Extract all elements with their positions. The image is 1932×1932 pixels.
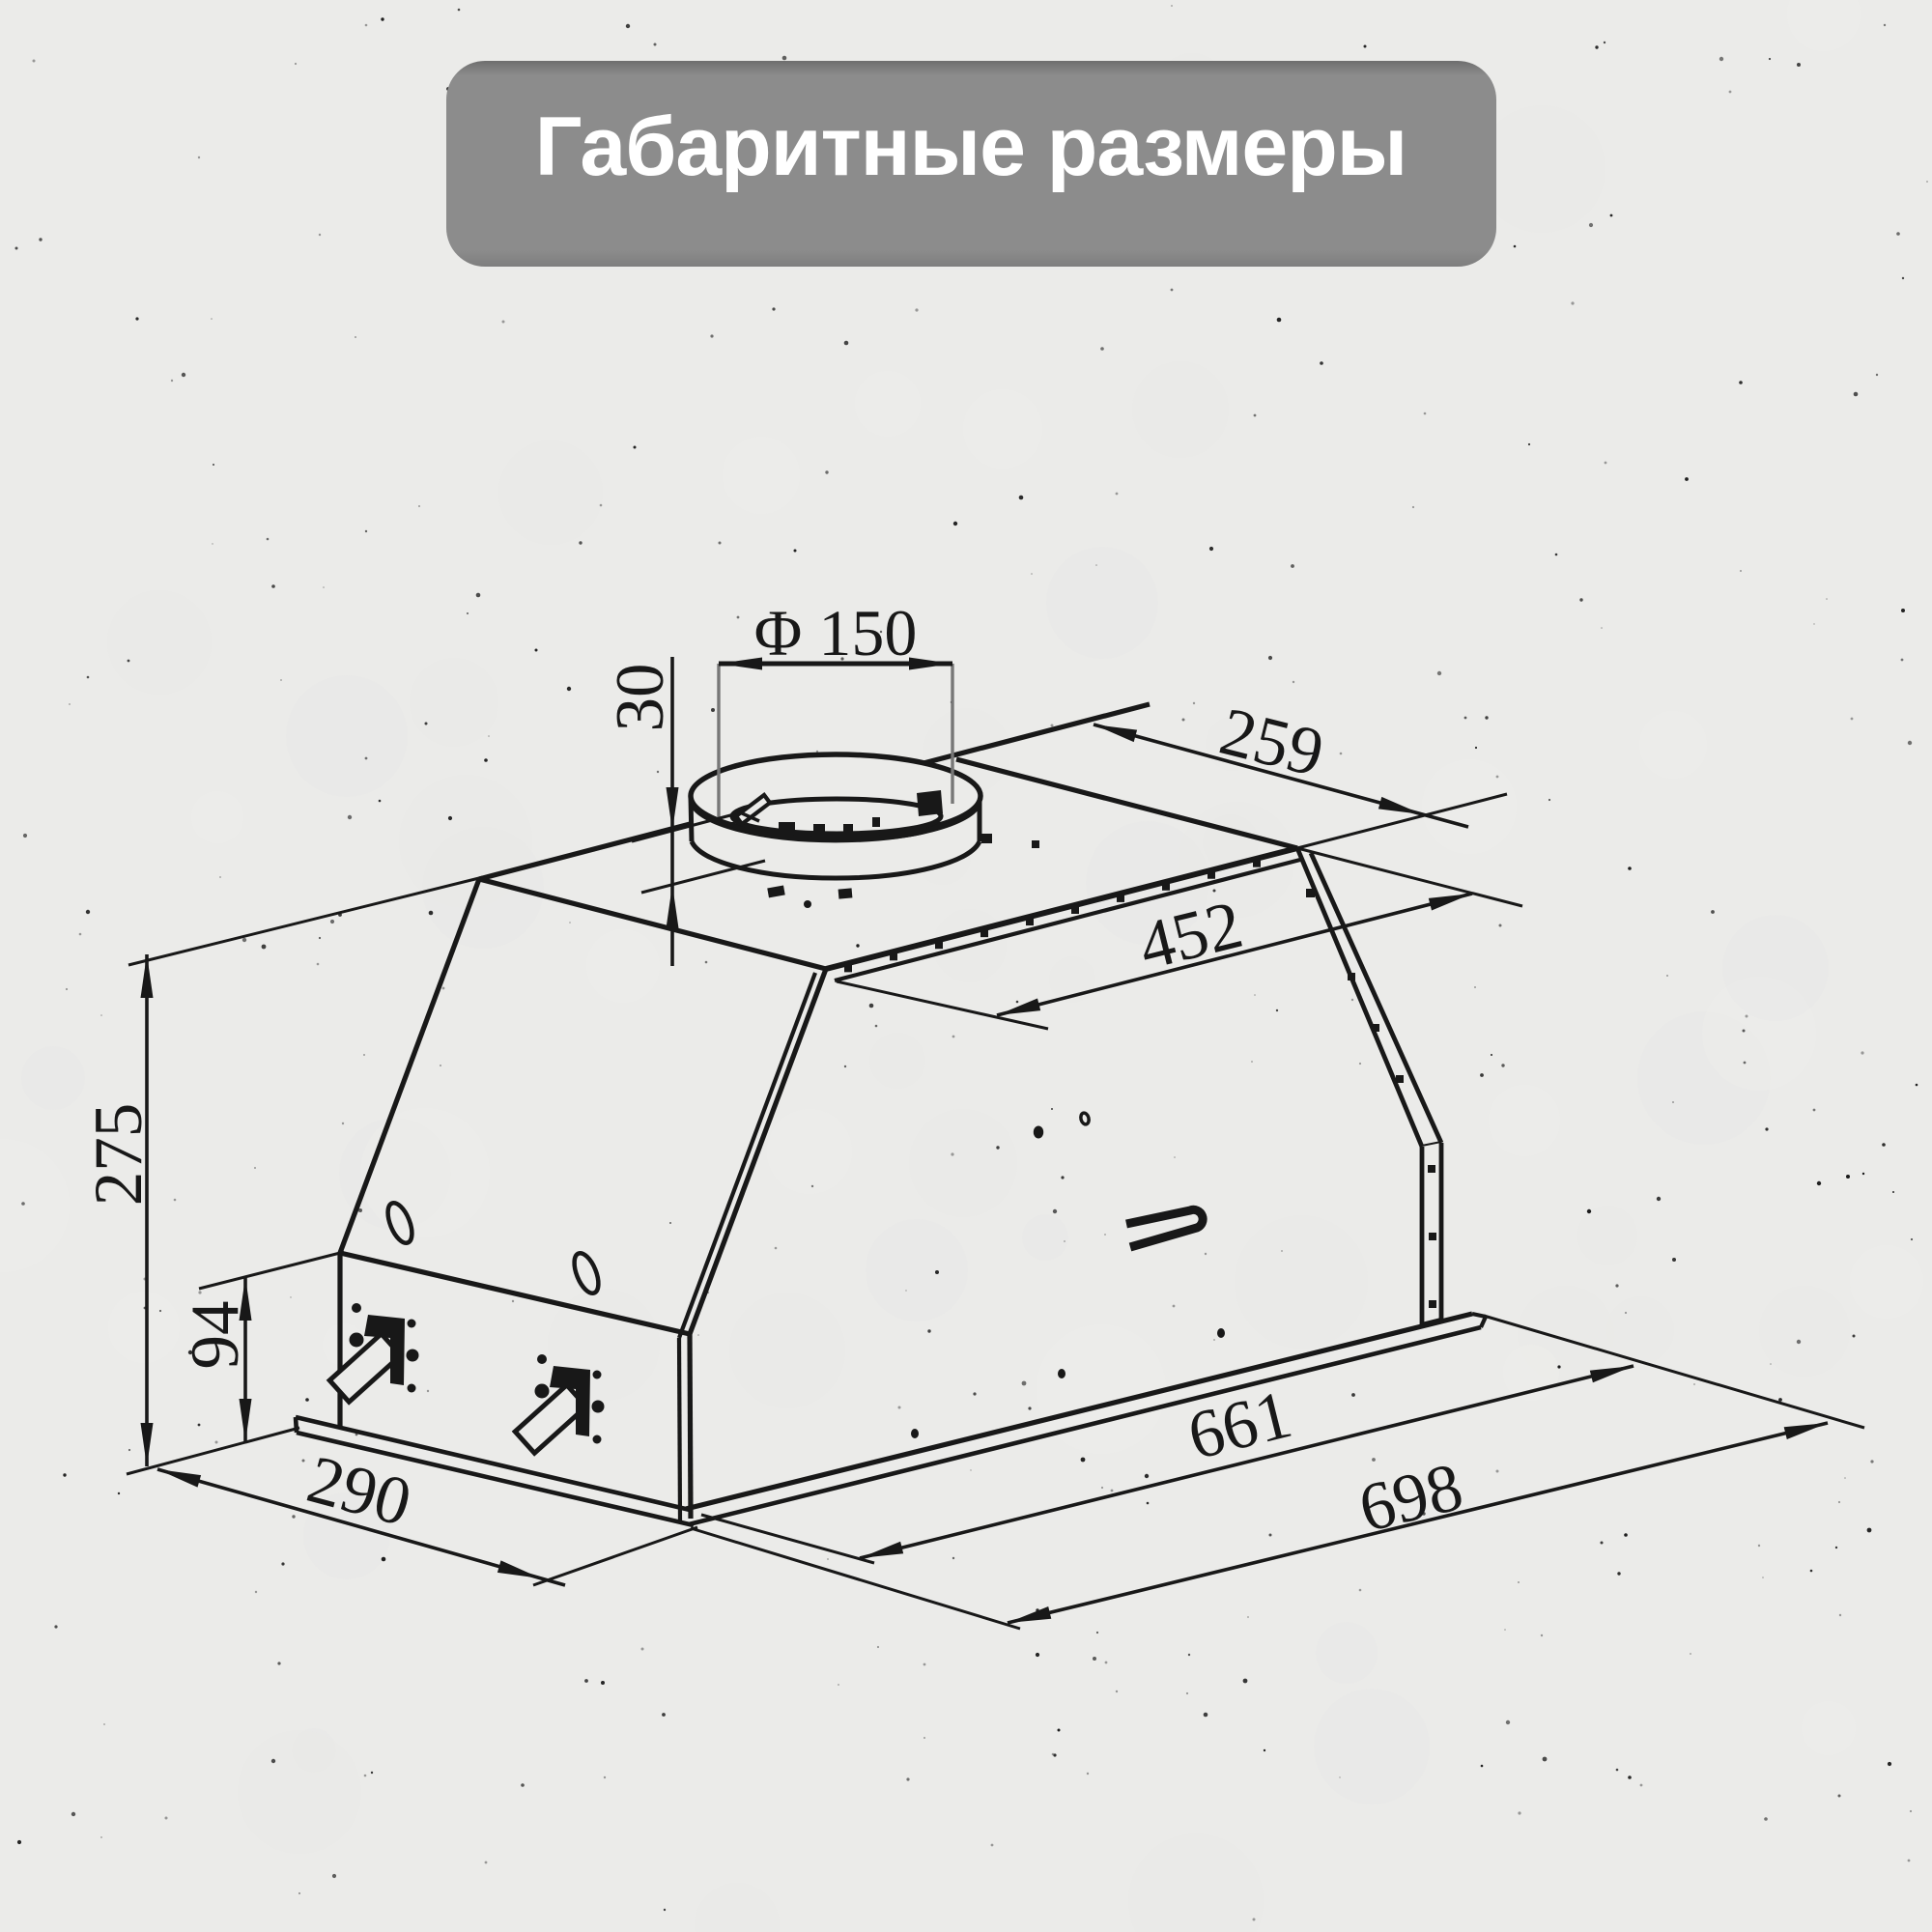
svg-text:Габаритные размеры: Габаритные размеры (535, 100, 1406, 193)
svg-text:Φ 150: Φ 150 (754, 596, 918, 669)
svg-text:275: 275 (81, 1103, 156, 1207)
svg-text:94: 94 (178, 1301, 253, 1370)
svg-text:30: 30 (603, 664, 678, 732)
